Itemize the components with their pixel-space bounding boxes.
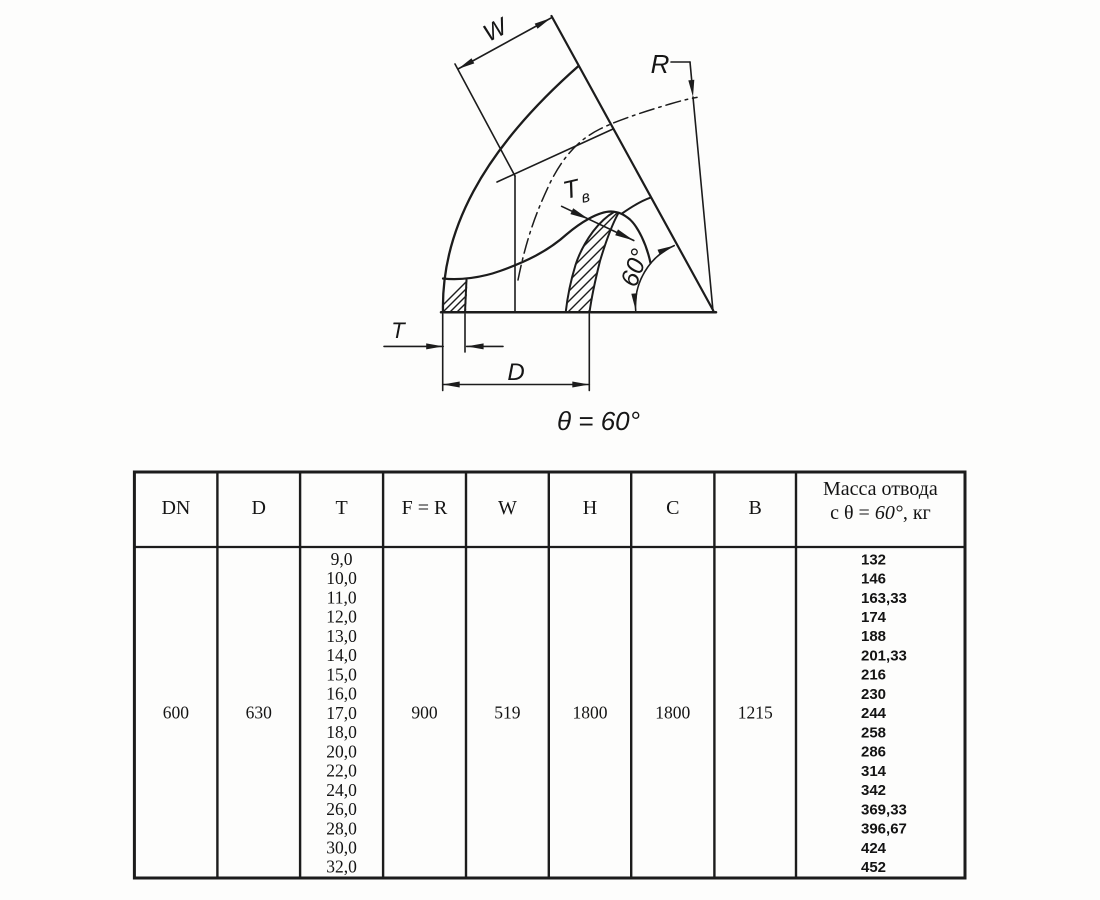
svg-text:201,33: 201,33 (861, 648, 907, 665)
svg-text:DN: DN (161, 497, 190, 519)
svg-text:D: D (507, 359, 524, 386)
svg-text:в: в (580, 188, 592, 206)
svg-text:630: 630 (246, 703, 273, 723)
svg-text:9,0: 9,0 (331, 549, 353, 569)
svg-text:424: 424 (861, 840, 887, 857)
svg-text:17,0: 17,0 (326, 703, 357, 723)
svg-text:258: 258 (861, 724, 886, 741)
svg-text:132: 132 (861, 551, 886, 568)
svg-text:18,0: 18,0 (326, 722, 357, 742)
svg-text:26,0: 26,0 (326, 799, 357, 819)
svg-text:174: 174 (861, 609, 887, 626)
svg-text:342: 342 (861, 782, 886, 799)
svg-text:B: B (749, 497, 762, 519)
svg-text:452: 452 (861, 859, 886, 876)
svg-text:28,0: 28,0 (326, 818, 357, 838)
svg-text:R: R (651, 49, 670, 79)
svg-text:146: 146 (861, 571, 886, 588)
svg-text:1215: 1215 (738, 703, 773, 723)
svg-text:216: 216 (861, 667, 886, 684)
svg-text:1800: 1800 (655, 703, 690, 723)
svg-text:22,0: 22,0 (326, 761, 357, 781)
svg-text:24,0: 24,0 (326, 780, 357, 800)
svg-text:W: W (479, 12, 514, 47)
svg-text:F = R: F = R (402, 497, 448, 519)
svg-text:396,67: 396,67 (861, 821, 907, 838)
svg-text:314: 314 (861, 763, 887, 780)
svg-text:519: 519 (494, 703, 521, 723)
svg-text:600: 600 (163, 703, 190, 723)
svg-text:10,0: 10,0 (326, 568, 357, 588)
svg-text:1800: 1800 (573, 703, 608, 723)
svg-text:15,0: 15,0 (326, 664, 357, 684)
svg-text:20,0: 20,0 (326, 741, 357, 761)
svg-text:32,0: 32,0 (326, 857, 357, 877)
svg-text:T: T (391, 318, 406, 343)
svg-text:C: C (666, 497, 679, 519)
svg-text:188: 188 (861, 628, 886, 645)
svg-text:900: 900 (411, 703, 438, 723)
svg-text:D: D (251, 497, 265, 519)
svg-text:12,0: 12,0 (326, 607, 357, 627)
svg-text:163,33: 163,33 (861, 590, 907, 607)
svg-text:369,33: 369,33 (861, 801, 907, 818)
svg-text:Масса отвода: Масса отвода (823, 478, 938, 500)
svg-text:θ = 60°: θ = 60° (557, 406, 640, 436)
svg-text:30,0: 30,0 (326, 838, 357, 858)
svg-text:W: W (498, 497, 517, 519)
svg-text:244: 244 (861, 705, 887, 722)
svg-text:14,0: 14,0 (326, 645, 357, 665)
svg-text:H: H (583, 497, 597, 519)
svg-text:16,0: 16,0 (326, 684, 357, 704)
svg-text:286: 286 (861, 744, 886, 761)
svg-text:T: T (335, 497, 347, 519)
svg-text:230: 230 (861, 686, 886, 703)
svg-text:11,0: 11,0 (327, 588, 357, 608)
svg-text:13,0: 13,0 (326, 626, 357, 646)
svg-text:с θ = 60°, кг: с θ = 60°, кг (830, 502, 931, 524)
